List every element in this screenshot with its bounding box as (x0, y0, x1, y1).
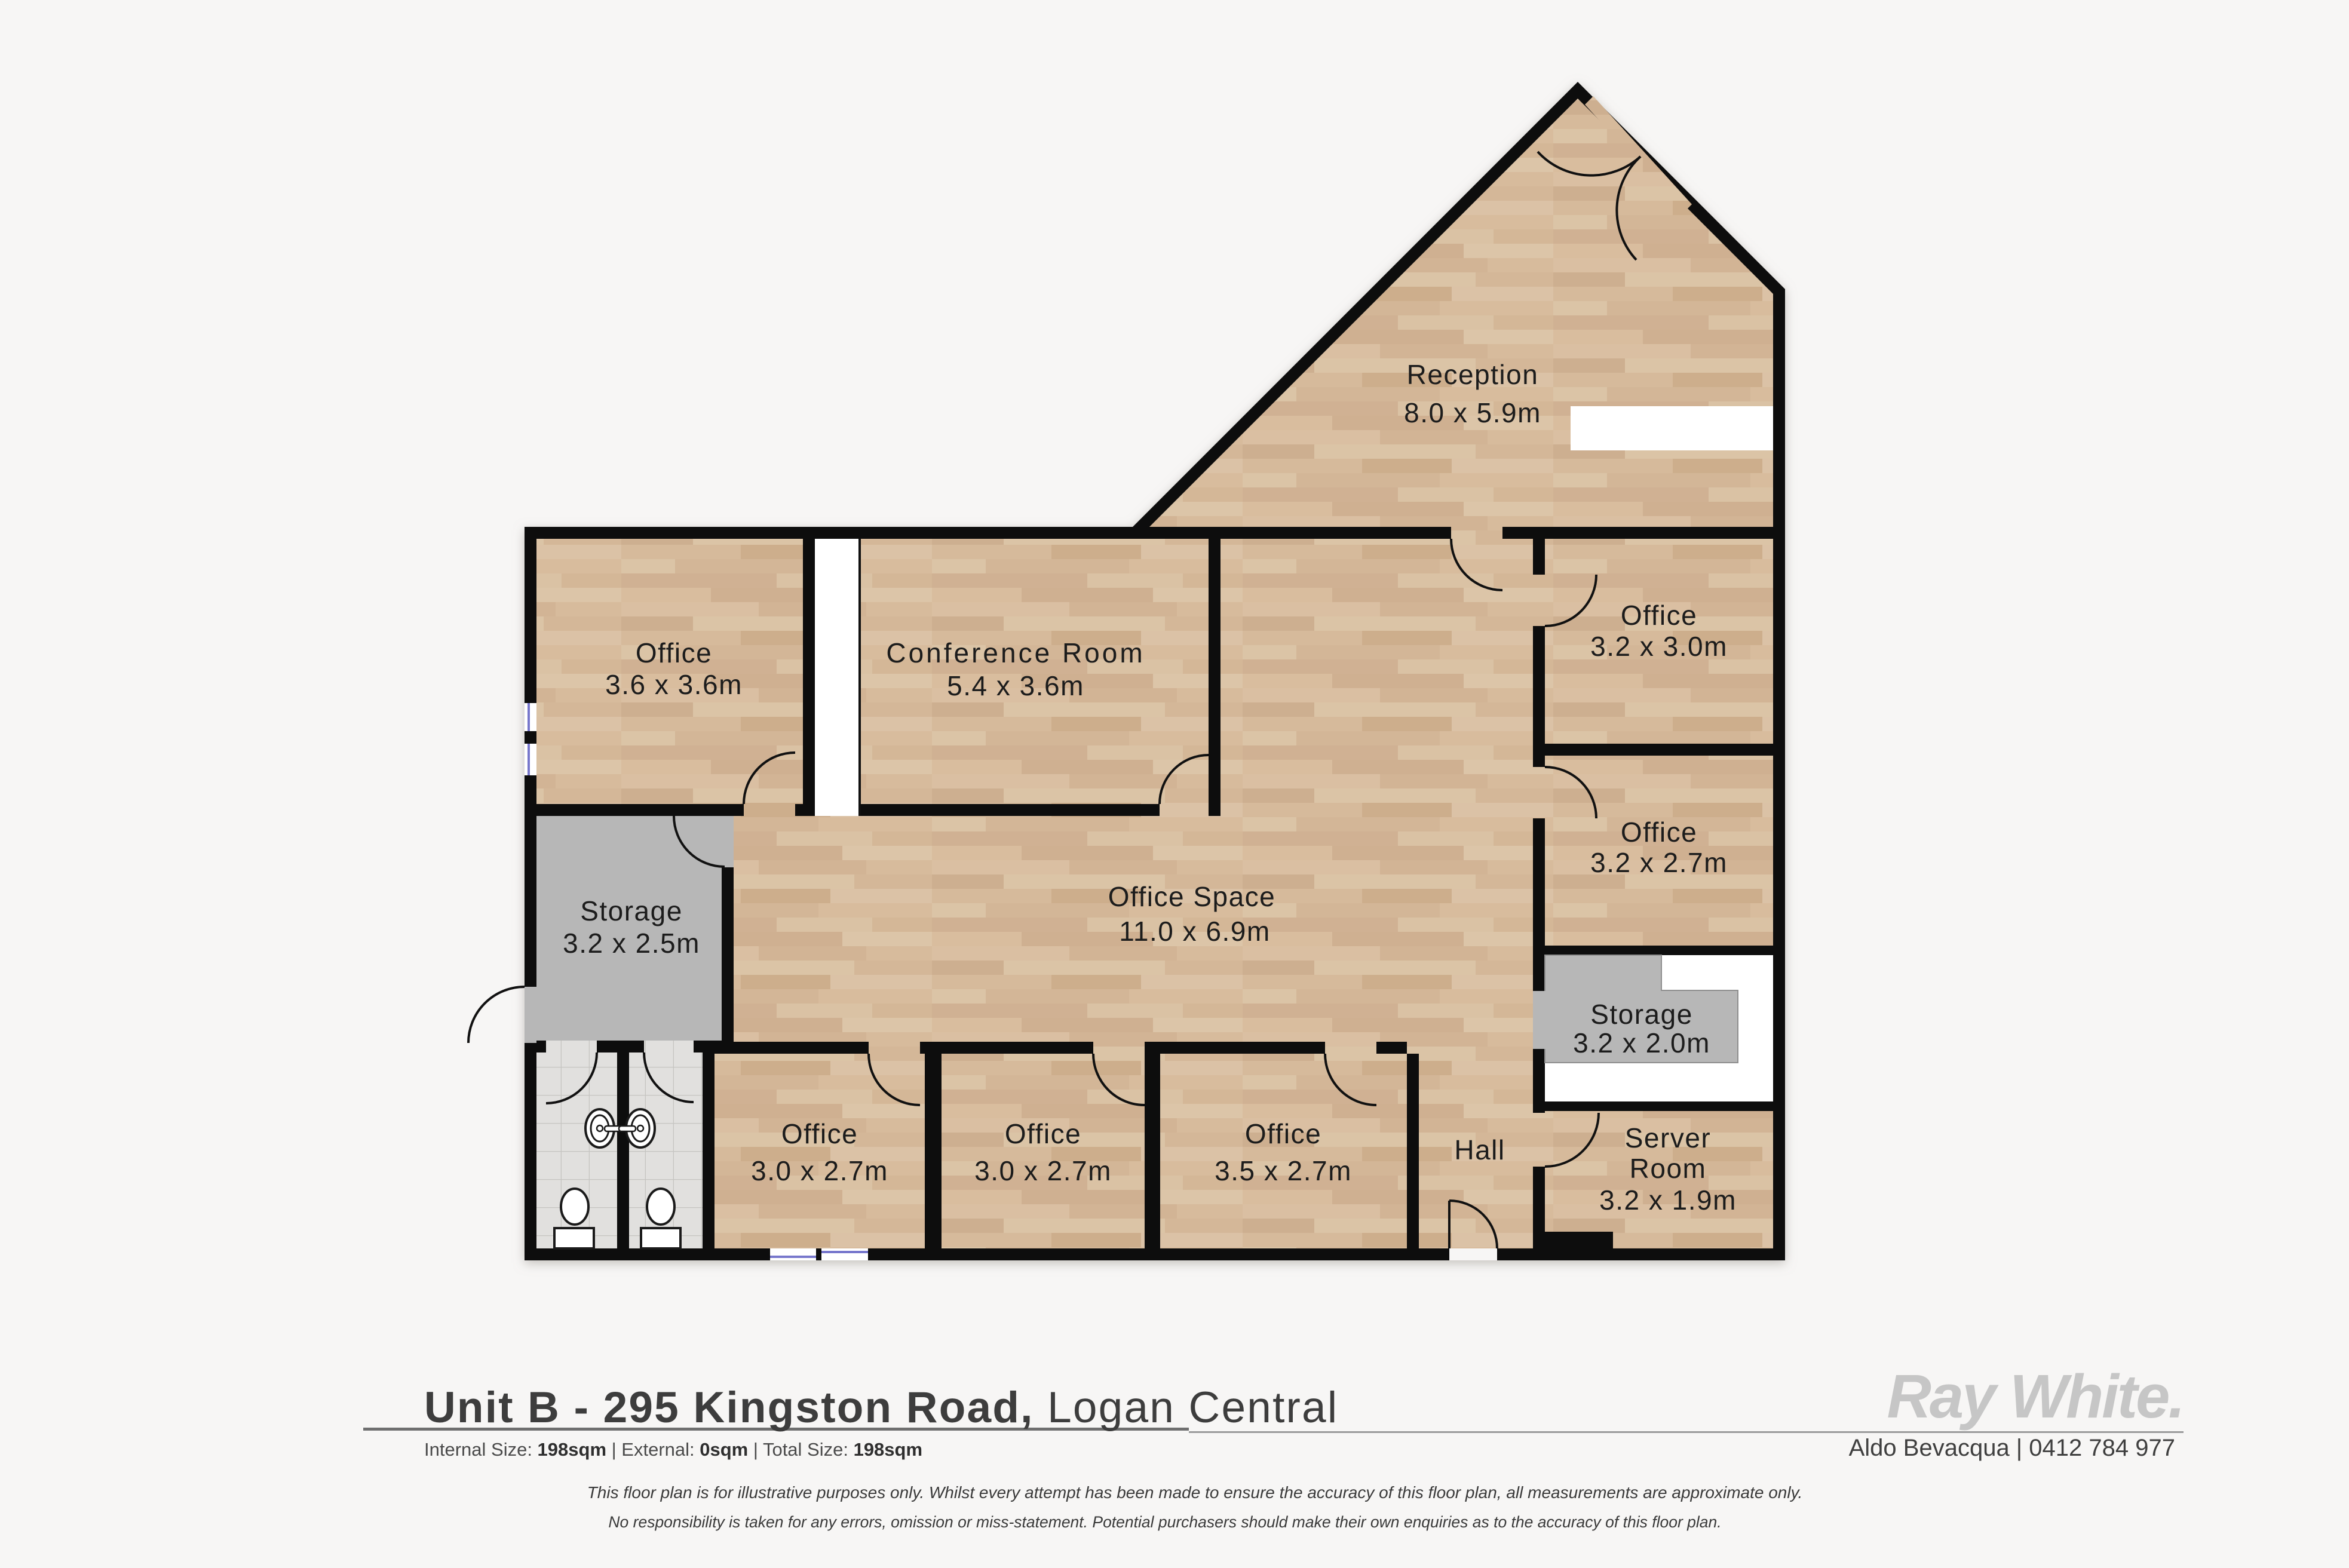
svg-text:3.0 x 2.7m: 3.0 x 2.7m (751, 1155, 888, 1186)
svg-text:5.4 x 3.6m: 5.4 x 3.6m (947, 670, 1084, 701)
svg-text:8.0 x 5.9m: 8.0 x 5.9m (1404, 397, 1541, 428)
svg-text:3.2 x 2.7m: 3.2 x 2.7m (1590, 847, 1728, 878)
svg-text:Reception: Reception (1407, 359, 1539, 390)
svg-text:Hall: Hall (1454, 1134, 1505, 1165)
svg-text:No responsibility is taken for: No responsibility is taken for any error… (608, 1513, 1721, 1531)
svg-text:Aldo Bevacqua | 0412 784 977: Aldo Bevacqua | 0412 784 977 (1849, 1435, 2175, 1461)
svg-text:Ray White.: Ray White. (1887, 1362, 2184, 1431)
svg-text:Storage: Storage (580, 895, 683, 926)
svg-text:Office: Office (1621, 817, 1697, 848)
svg-text:3.2 x 2.0m: 3.2 x 2.0m (1573, 1027, 1710, 1058)
svg-text:Server: Server (1625, 1122, 1711, 1153)
svg-text:Unit B - 295 Kingston Road, Lo: Unit B - 295 Kingston Road, Logan Centra… (424, 1383, 1338, 1432)
svg-text:Office: Office (1005, 1118, 1081, 1149)
svg-text:Room: Room (1630, 1153, 1707, 1184)
svg-text:This floor plan is for illustr: This floor plan is for illustrative purp… (587, 1483, 1803, 1502)
svg-text:Office Space: Office Space (1108, 881, 1276, 912)
svg-text:Office: Office (781, 1118, 858, 1149)
svg-text:11.0 x 6.9m: 11.0 x 6.9m (1119, 916, 1270, 947)
svg-text:3.5 x 2.7m: 3.5 x 2.7m (1215, 1155, 1352, 1186)
svg-text:3.0 x 2.7m: 3.0 x 2.7m (974, 1155, 1112, 1186)
svg-text:Conference Room: Conference Room (886, 637, 1145, 668)
svg-text:3.2 x 2.5m: 3.2 x 2.5m (563, 928, 700, 959)
svg-text:Office: Office (636, 637, 712, 668)
svg-text:3.2 x 1.9m: 3.2 x 1.9m (1599, 1185, 1737, 1216)
svg-text:Storage: Storage (1590, 999, 1693, 1030)
svg-text:Office: Office (1245, 1118, 1321, 1149)
svg-text:Internal Size: 198sqm | Extern: Internal Size: 198sqm | External: 0sqm |… (424, 1439, 922, 1460)
svg-text:Office: Office (1621, 600, 1697, 631)
svg-text:3.6 x 3.6m: 3.6 x 3.6m (605, 669, 743, 700)
svg-text:3.2 x 3.0m: 3.2 x 3.0m (1590, 631, 1728, 662)
